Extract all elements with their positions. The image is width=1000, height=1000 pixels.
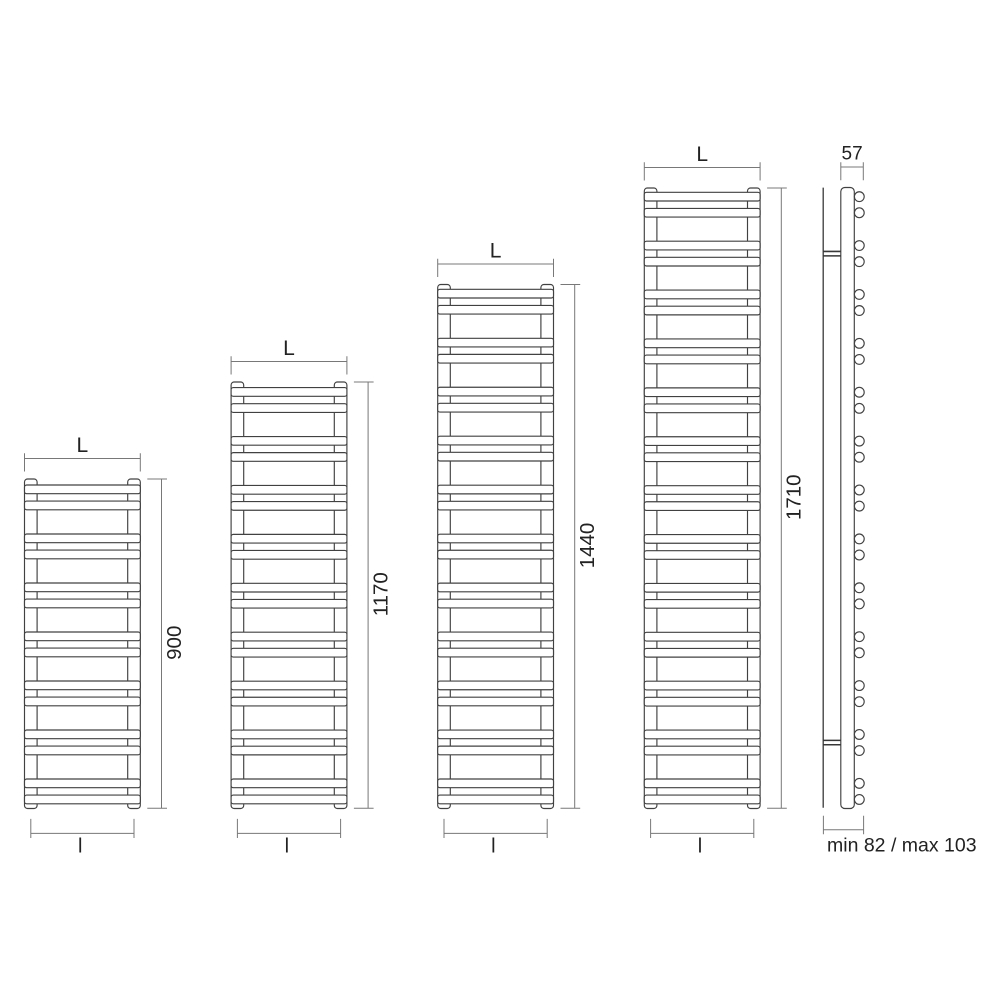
svg-text:L: L — [283, 337, 295, 360]
svg-text:57: 57 — [842, 144, 863, 165]
svg-text:l: l — [78, 836, 82, 858]
svg-text:1710: 1710 — [783, 474, 806, 520]
svg-text:1170: 1170 — [369, 572, 392, 616]
svg-text:900: 900 — [163, 626, 186, 660]
svg-text:L: L — [696, 143, 708, 166]
svg-text:L: L — [490, 240, 502, 263]
svg-text:l: l — [491, 836, 495, 858]
svg-text:1440: 1440 — [576, 523, 599, 569]
svg-text:min 82 / max 103: min 82 / max 103 — [827, 835, 977, 857]
svg-text:L: L — [77, 434, 89, 457]
svg-text:l: l — [698, 836, 702, 858]
svg-text:l: l — [285, 836, 289, 858]
